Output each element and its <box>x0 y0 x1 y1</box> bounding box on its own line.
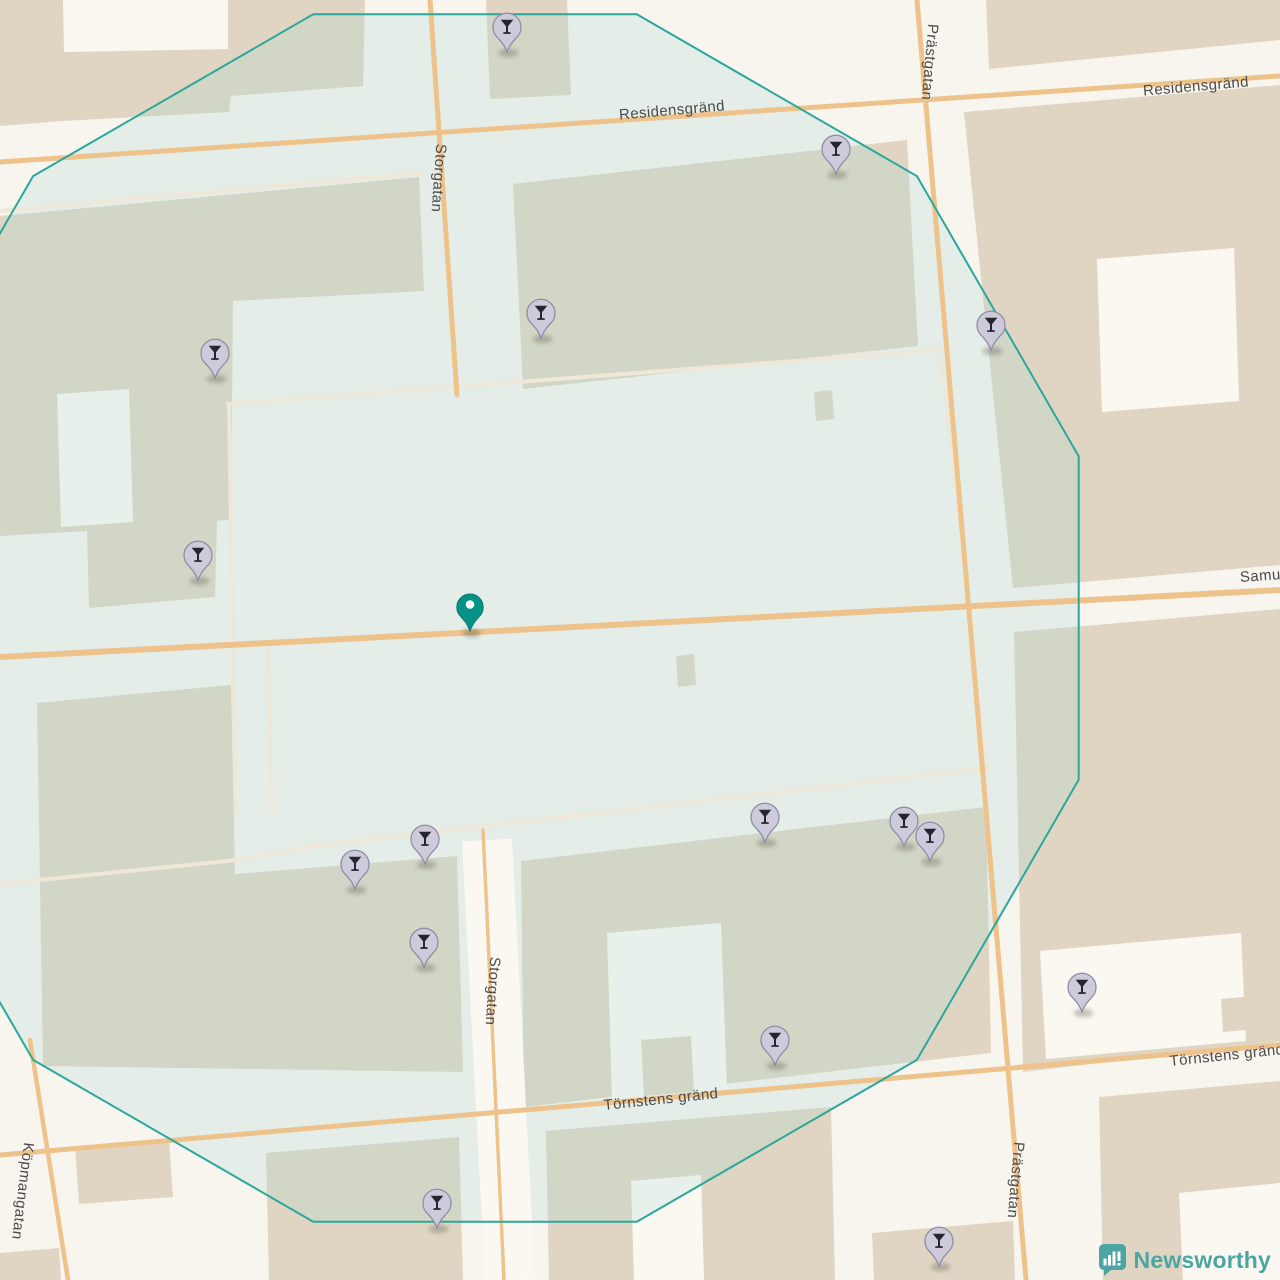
newsworthy-wordmark: Newsworthy <box>1134 1247 1271 1274</box>
newsworthy-logo[interactable]: Newsworthy <box>1099 1244 1271 1276</box>
building <box>0 1248 61 1280</box>
newsworthy-icon <box>1099 1244 1126 1276</box>
bar-chart-icon <box>1103 1259 1106 1266</box>
street-label-samuelsgatan: Samu <box>1239 566 1280 586</box>
map-container: Residensgränd Residensgränd Storgatan Pr… <box>0 0 1280 1280</box>
building-courtyard <box>63 0 228 52</box>
building <box>1221 996 1256 1032</box>
map-canvas[interactable]: Residensgränd Residensgränd Storgatan Pr… <box>0 0 1280 1280</box>
building-courtyard <box>1097 248 1239 412</box>
road <box>487 840 510 1280</box>
